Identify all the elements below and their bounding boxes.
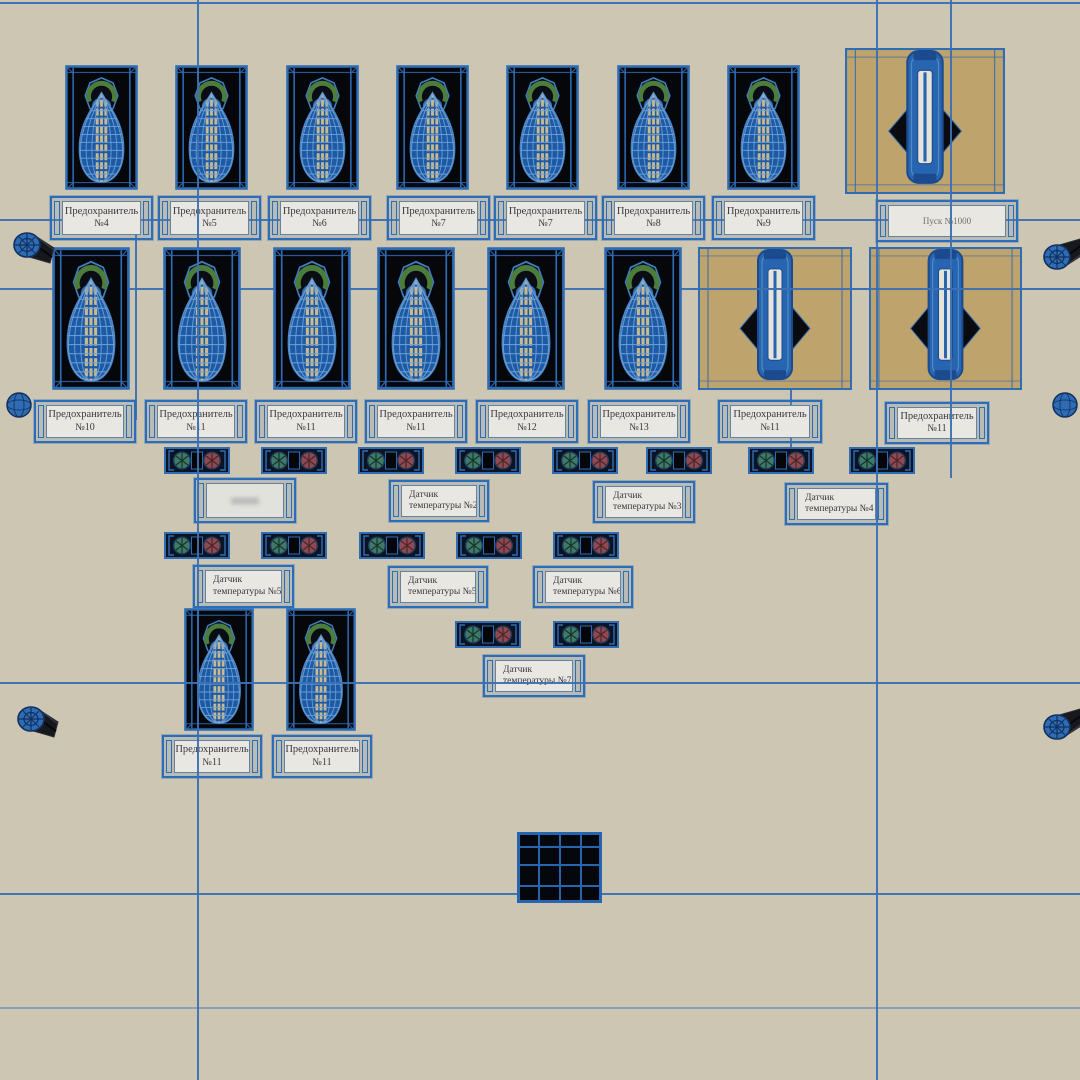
mounting-bolt[interactable] <box>1042 704 1080 742</box>
terminal-block-icon <box>553 532 619 559</box>
plate-text-line2: температуры №5 <box>408 587 476 598</box>
panel-wire-horizontal <box>0 2 1080 4</box>
fuse-wireframe-icon <box>727 65 800 190</box>
terminal-block[interactable] <box>455 621 521 648</box>
fuse-nameplate[interactable]: Предохранитель №11 <box>255 400 357 443</box>
plate-face: Предохранитель №11 <box>377 405 455 438</box>
fuse-unit[interactable] <box>65 65 138 190</box>
fuse-nameplate[interactable]: Предохранитель №13 <box>588 400 690 443</box>
plate-frame-post <box>695 201 701 235</box>
plate-text-line1: Пуск №1000 <box>923 216 971 227</box>
plate-face: Предохранитель №11 <box>897 407 977 439</box>
starter-switch-unit[interactable] <box>845 48 1005 194</box>
mounting-bolt[interactable] <box>1042 234 1080 272</box>
fuse-wireframe-icon <box>65 65 138 190</box>
plate-face <box>206 483 284 518</box>
plate-frame-post <box>162 201 168 235</box>
plate-text-line1: Предохранитель <box>509 206 582 218</box>
plate-face: Датчик температуры №5 <box>400 571 476 603</box>
panel-wire-vertical <box>197 0 199 1080</box>
plate-frame-post <box>54 201 60 235</box>
plate-text-line1: Предохранитель <box>402 206 475 218</box>
fuse-nameplate[interactable]: Предохранитель №10 <box>34 400 136 443</box>
plate-frame-post <box>685 486 691 518</box>
plate-face: Предохранитель №9 <box>724 201 803 235</box>
plate-text-line1: Датчик <box>213 575 242 586</box>
plate-frame-post <box>286 483 292 518</box>
plate-frame-post <box>237 405 243 438</box>
plate-frame-post <box>878 488 884 520</box>
fuse-unit[interactable] <box>52 247 130 390</box>
fuse-wireframe-icon <box>175 65 248 190</box>
plate-text-line2: №9 <box>756 218 771 230</box>
plate-text-line1: Предохранитель <box>727 206 800 218</box>
plate-smudge <box>231 497 259 504</box>
plate-frame-post <box>1008 205 1014 237</box>
fuse-nameplate[interactable]: Предохранитель №8 <box>602 196 705 240</box>
plate-frame-post <box>362 740 368 773</box>
knife-switch-icon <box>869 247 1022 390</box>
terminal-block[interactable] <box>456 532 522 559</box>
plate-text-line2: №5 <box>202 218 217 230</box>
plate-frame-post <box>575 660 581 692</box>
plate-text-line1: Предохранитель <box>65 206 138 218</box>
plate-frame-post <box>259 405 265 438</box>
fuse-unit[interactable] <box>487 247 565 390</box>
fuse-wireframe-icon <box>396 65 469 190</box>
terminal-block[interactable] <box>552 447 618 474</box>
fuse-wireframe-icon <box>377 247 455 390</box>
terminal-block-icon <box>849 447 915 474</box>
plate-face: Предохранитель №10 <box>46 405 124 438</box>
plate-frame-post <box>126 405 132 438</box>
terminal-block[interactable] <box>358 447 424 474</box>
plate-frame-post <box>251 201 257 235</box>
plate-frame-post <box>623 571 629 603</box>
plate-face: Предохранитель №13 <box>600 405 678 438</box>
plate-text-line1: Датчик <box>805 493 834 504</box>
fuse-nameplate[interactable]: Предохранитель №12 <box>476 400 578 443</box>
fuse-nameplate[interactable]: Предохранитель №9 <box>712 196 815 240</box>
plate-frame-post <box>369 405 375 438</box>
plate-face: Пуск №1000 <box>888 205 1006 237</box>
knife-switch-icon <box>698 247 852 390</box>
plate-text-line1: Предохранитель <box>733 409 806 421</box>
fuse-unit[interactable] <box>286 608 356 731</box>
plate-frame-post <box>457 405 463 438</box>
fuse-unit[interactable] <box>184 608 254 731</box>
fuse-wireframe-icon <box>163 247 241 390</box>
plate-frame-post <box>392 571 398 603</box>
fuse-nameplate[interactable]: Предохранитель №7 <box>387 196 490 240</box>
plate-frame-post <box>487 660 493 692</box>
plate-frame-post <box>805 201 811 235</box>
plate-face: Предохранитель №11 <box>174 740 250 773</box>
terminal-block[interactable] <box>849 447 915 474</box>
terminal-block[interactable] <box>261 532 327 559</box>
bolt-head-icon <box>1052 392 1078 418</box>
sensor-nameplate[interactable]: Датчик температуры №2 <box>389 480 489 522</box>
plate-face: Предохранитель №12 <box>488 405 566 438</box>
plate-text-line1: Предохранитель <box>283 206 356 218</box>
plate-frame-post <box>347 405 353 438</box>
bolt-icon <box>1042 704 1080 742</box>
fuse-wireframe-icon <box>487 247 565 390</box>
plate-frame-post <box>479 485 485 517</box>
terminal-block[interactable] <box>359 532 425 559</box>
terminal-block-icon <box>455 621 521 648</box>
fuse-nameplate[interactable]: Предохранитель №5 <box>158 196 261 240</box>
mounting-bolt[interactable] <box>1052 392 1078 418</box>
plate-frame-post <box>143 201 149 235</box>
plate-text-line1: Предохранитель <box>48 409 121 421</box>
plate-text-line2: №6 <box>312 218 327 230</box>
plate-face: Датчик температуры №6 <box>545 571 621 603</box>
knife-switch-unit[interactable] <box>698 247 852 390</box>
plate-text-line2: №8 <box>646 218 661 230</box>
sensor-nameplate[interactable] <box>194 478 296 523</box>
plate-face: Предохранитель №11 <box>284 740 360 773</box>
terminal-block-icon <box>552 447 618 474</box>
terminal-block-icon <box>358 447 424 474</box>
mounting-bolt[interactable] <box>6 392 32 418</box>
plate-face: Датчик температуры №4 <box>797 488 876 520</box>
plate-text-line1: Предохранитель <box>285 744 358 756</box>
plate-frame-post <box>149 405 155 438</box>
terminal-block[interactable] <box>455 447 521 474</box>
terminal-block-icon <box>261 447 327 474</box>
plate-face: Датчик температуры №2 <box>401 485 477 517</box>
terminal-block-icon <box>456 532 522 559</box>
fuse-nameplate[interactable]: Предохранитель №11 <box>365 400 467 443</box>
plate-frame-post <box>361 201 367 235</box>
sensor-nameplate[interactable]: Датчик температуры №7 <box>483 655 585 697</box>
plate-text-line2: температуры №5 <box>213 587 282 598</box>
terminal-block[interactable] <box>553 621 619 648</box>
plate-text-line2: №11 <box>202 757 221 769</box>
fuse-nameplate[interactable]: Предохранитель №11 <box>885 402 989 444</box>
plate-face: Предохранитель №7 <box>506 201 585 235</box>
plate-face: Датчик температуры №3 <box>605 486 683 518</box>
plate-text-line2: №11 <box>760 422 779 434</box>
plate-frame-post <box>480 201 486 235</box>
plate-frame-post <box>252 740 258 773</box>
starter-nameplate[interactable]: Пуск №1000 <box>876 200 1018 242</box>
plate-frame-post <box>480 405 486 438</box>
plate-text-line1: Датчик <box>503 665 532 676</box>
fuse-nameplate[interactable]: Предохранитель №11 <box>162 735 262 778</box>
plate-text-line2: температуры №4 <box>805 504 874 515</box>
fuse-unit[interactable] <box>727 65 800 190</box>
panel-wire-horizontal <box>0 1007 1080 1009</box>
plate-frame-post <box>789 488 795 520</box>
plate-frame-post <box>812 405 818 438</box>
sensor-nameplate[interactable]: Датчик температуры №5 <box>193 565 294 608</box>
fuse-nameplate[interactable]: Предохранитель №11 <box>272 735 372 778</box>
plate-text-line2: №11 <box>186 422 205 434</box>
plate-text-line1: Предохранитель <box>379 409 452 421</box>
panel-wire-horizontal <box>690 288 1080 290</box>
plate-frame-post <box>592 405 598 438</box>
plate-face: Датчик температуры №7 <box>495 660 573 692</box>
plate-text-line2: №7 <box>431 218 446 230</box>
plate-face: Предохранитель №8 <box>614 201 693 235</box>
plate-text-line2: №11 <box>406 422 425 434</box>
plate-text-line1: Предохранитель <box>617 206 690 218</box>
plate-frame-post <box>537 571 543 603</box>
grille-icon <box>517 832 602 903</box>
plate-frame-post <box>716 201 722 235</box>
plate-text-line1: Предохранитель <box>900 411 973 423</box>
plate-text-line2: температуры №3 <box>613 502 682 513</box>
fuse-unit[interactable] <box>286 65 359 190</box>
plate-frame-post <box>568 405 574 438</box>
fuse-wireframe-icon <box>617 65 690 190</box>
fuse-nameplate[interactable]: Предохранитель №11 <box>718 400 822 443</box>
plate-frame-post <box>276 740 282 773</box>
fuse-unit[interactable] <box>617 65 690 190</box>
plate-frame-post <box>284 570 290 603</box>
panel-wire-horizontal <box>0 682 1080 684</box>
terminal-block[interactable] <box>553 532 619 559</box>
bolt-head-icon <box>6 392 32 418</box>
panel-wire-vertical <box>950 0 952 478</box>
plate-text-line1: Предохранитель <box>269 409 342 421</box>
fuse-nameplate[interactable]: Предохранитель №6 <box>268 196 371 240</box>
viewport-3d-scene[interactable]: Предохранитель №4 Предохранитель №5 Пред… <box>0 0 1080 1080</box>
fuse-unit[interactable] <box>377 247 455 390</box>
plate-frame-post <box>478 571 484 603</box>
plate-frame-post <box>272 201 278 235</box>
plate-text-line1: Предохранитель <box>175 744 248 756</box>
plate-text-line2: №11 <box>296 422 315 434</box>
terminal-block[interactable] <box>748 447 814 474</box>
plate-face: Предохранитель №11 <box>267 405 345 438</box>
plate-text-line1: Датчик <box>553 576 582 587</box>
plate-text-line1: Датчик <box>613 491 642 502</box>
plate-text-line1: Предохранитель <box>490 409 563 421</box>
fuse-unit[interactable] <box>175 65 248 190</box>
plate-text-line1: Датчик <box>409 490 438 501</box>
fuse-unit[interactable] <box>273 247 351 390</box>
plate-text-line2: №13 <box>629 422 649 434</box>
plate-frame-post <box>979 407 985 439</box>
plate-frame-post <box>498 201 504 235</box>
plate-frame-post <box>606 201 612 235</box>
bolt-icon <box>16 704 62 742</box>
plate-frame-post <box>38 405 44 438</box>
plate-text-line2: №7 <box>538 218 553 230</box>
fuse-wireframe-icon <box>506 65 579 190</box>
sensor-nameplate[interactable]: Датчик температуры №6 <box>533 566 633 608</box>
plate-face: Предохранитель №11 <box>157 405 235 438</box>
panel-wire-vertical <box>876 0 878 1080</box>
plate-text-line2: температуры №2 <box>409 501 477 512</box>
fuse-wireframe-icon <box>286 65 359 190</box>
plate-frame-post <box>393 485 399 517</box>
terminal-block-icon <box>261 532 327 559</box>
plate-frame-post <box>889 407 895 439</box>
fuse-unit[interactable] <box>396 65 469 190</box>
plate-text-line1: Предохранитель <box>602 409 675 421</box>
plate-frame-post <box>880 205 886 237</box>
fuse-wireframe-icon <box>184 608 254 731</box>
plate-frame-post <box>597 486 603 518</box>
knife-switch-unit[interactable] <box>869 247 1022 390</box>
sensor-nameplate[interactable]: Датчик температуры №5 <box>388 566 488 608</box>
plate-text-line2: №12 <box>517 422 537 434</box>
plate-text-line2: температуры №6 <box>553 587 621 598</box>
fuse-wireframe-icon <box>52 247 130 390</box>
terminal-block-icon <box>455 447 521 474</box>
fuse-wireframe-icon <box>604 247 682 390</box>
terminal-block-icon <box>359 532 425 559</box>
plate-text-line2: №11 <box>312 757 331 769</box>
plate-face: Предохранитель №5 <box>170 201 249 235</box>
plate-frame-post <box>680 405 686 438</box>
plate-face: Датчик температуры №5 <box>205 570 282 603</box>
bolt-icon <box>1042 234 1080 272</box>
terminal-block[interactable] <box>646 447 712 474</box>
fuse-nameplate[interactable]: Предохранитель №4 <box>50 196 153 240</box>
panel-wire-vertical <box>135 222 137 420</box>
terminal-block[interactable] <box>261 447 327 474</box>
plate-frame-post <box>166 740 172 773</box>
fuse-wireframe-icon <box>273 247 351 390</box>
fuse-unit[interactable] <box>163 247 241 390</box>
plate-face: Предохранитель №6 <box>280 201 359 235</box>
vent-grille[interactable] <box>517 832 602 903</box>
plate-text-line2: №10 <box>75 422 95 434</box>
plate-text-line2: №4 <box>94 218 109 230</box>
terminal-block-icon <box>748 447 814 474</box>
fuse-unit[interactable] <box>506 65 579 190</box>
plate-frame-post <box>391 201 397 235</box>
plate-text-line1: Предохранитель <box>159 409 232 421</box>
plate-text-line1: Датчик <box>408 576 437 587</box>
sensor-nameplate[interactable]: Датчик температуры №3 <box>593 481 695 523</box>
plate-face: Предохранитель №4 <box>62 201 141 235</box>
plate-text-line1: Предохранитель <box>173 206 246 218</box>
knife-switch-icon <box>845 48 1005 194</box>
terminal-block-icon <box>646 447 712 474</box>
plate-face: Предохранитель №7 <box>399 201 478 235</box>
mounting-bolt[interactable] <box>16 704 62 742</box>
plate-frame-post <box>722 405 728 438</box>
plate-frame-post <box>587 201 593 235</box>
plate-face: Предохранитель №11 <box>730 405 810 438</box>
plate-text-line2: №11 <box>927 423 946 435</box>
fuse-unit[interactable] <box>604 247 682 390</box>
fuse-nameplate[interactable]: Предохранитель №11 <box>145 400 247 443</box>
sensor-nameplate[interactable]: Датчик температуры №4 <box>785 483 888 525</box>
terminal-block-icon <box>553 621 619 648</box>
fuse-nameplate[interactable]: Предохранитель №7 <box>494 196 597 240</box>
fuse-wireframe-icon <box>286 608 356 731</box>
